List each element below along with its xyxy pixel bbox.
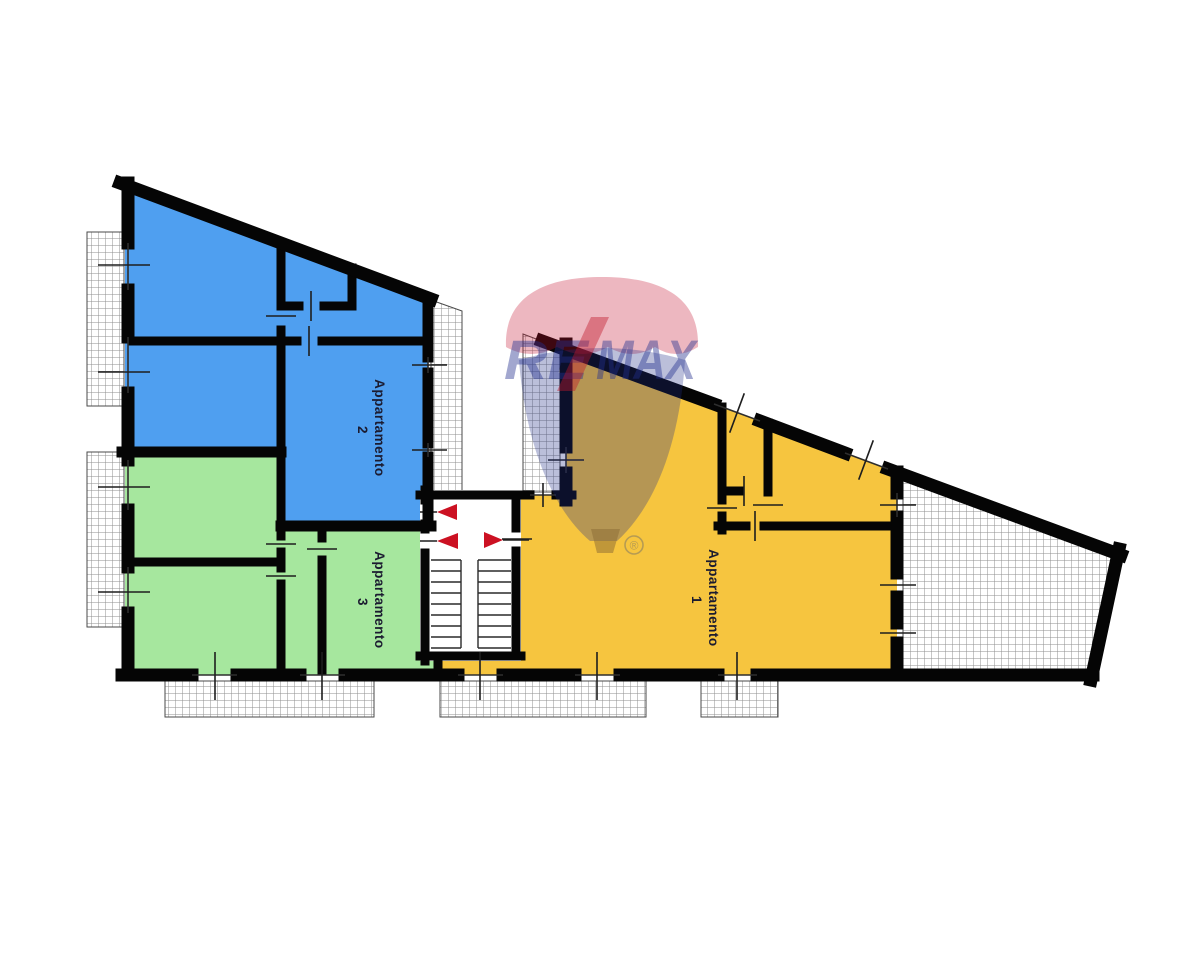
lightwell-hatch-left [431, 300, 462, 492]
stairwell-floor [420, 490, 521, 661]
left-balcony-lower [87, 452, 124, 627]
floor-plan-image: Appartamento 2 Appartamento 3 Appartamen… [0, 0, 1200, 960]
bottom-balcony-middle [440, 681, 646, 717]
remax-wordmark-max: MAX [596, 328, 699, 391]
svg-text:®: ® [630, 539, 639, 553]
left-balcony-upper [87, 232, 124, 406]
bottom-balcony-right [701, 681, 778, 717]
page: Appartamento 2 Appartamento 3 Appartamen… [0, 0, 1200, 960]
terrace-hatch [903, 474, 1118, 676]
bottom-balcony-left [165, 681, 374, 717]
